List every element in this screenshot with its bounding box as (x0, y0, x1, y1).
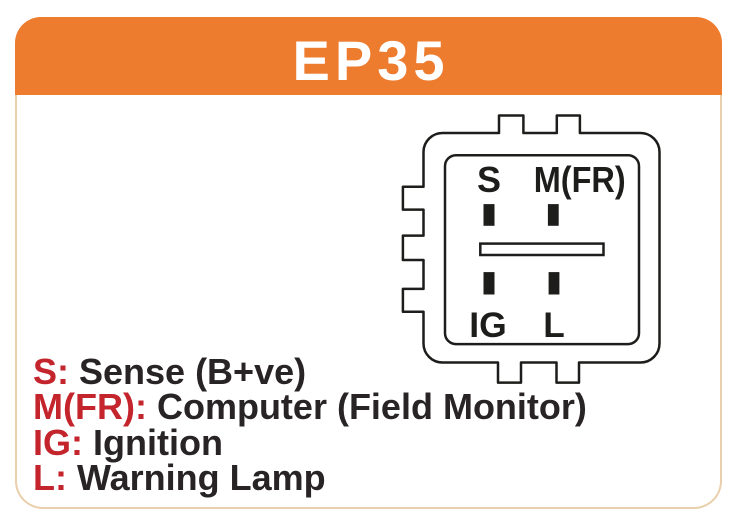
svg-text:S: S (477, 159, 501, 200)
svg-text:M(FR): M(FR) (534, 159, 626, 200)
svg-text:L: L (543, 305, 565, 345)
svg-text:IG: IG (469, 305, 506, 345)
